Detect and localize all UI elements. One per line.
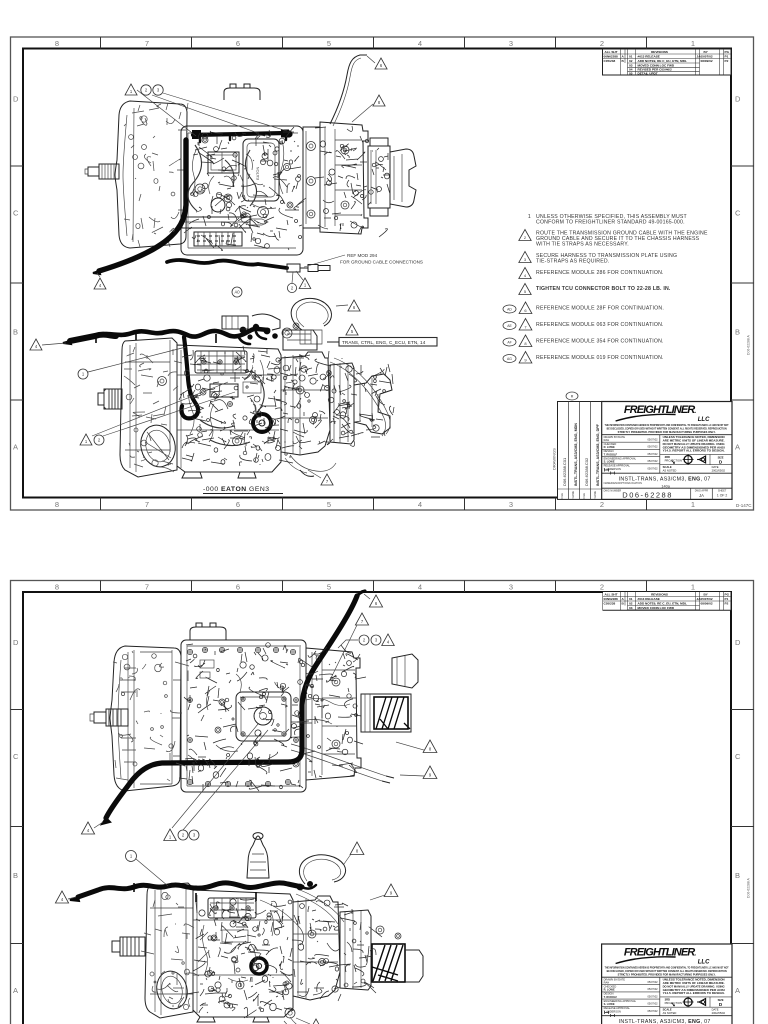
svg-text:D06-62288.C01: D06-62288.C01 — [562, 457, 567, 486]
svg-text:3: 3 — [509, 500, 513, 509]
svg-text:FILE: FILE — [582, 493, 586, 499]
svg-text:6: 6 — [236, 583, 240, 592]
svg-text:C: C — [735, 209, 741, 218]
svg-text:D-147C: D-147C — [736, 503, 752, 508]
svg-text:AE: AE — [507, 324, 512, 328]
svg-text:3: 3 — [509, 583, 513, 592]
svg-text:A: A — [735, 443, 740, 452]
svg-text:REFERENCE MODULE 063 FOR CONTI: REFERENCE MODULE 063 FOR CONTINUATION. — [536, 322, 664, 328]
svg-text:A: A — [735, 986, 740, 995]
svg-text:8: 8 — [55, 500, 59, 509]
svg-text:B: B — [735, 328, 740, 337]
svg-text:TIE-STRAPS AS REQUIRED.: TIE-STRAPS AS REQUIRED. — [536, 259, 610, 265]
svg-text:7: 7 — [145, 39, 149, 48]
svg-text:D06-62288 A: D06-62288 A — [747, 877, 751, 898]
svg-text:R: R — [571, 395, 574, 399]
svg-text:FOR GROUND CABLE CONNECTIONS: FOR GROUND CABLE CONNECTIONS — [340, 260, 423, 265]
svg-text:7: 7 — [145, 583, 149, 592]
svg-text:DRAWINGS: DRAWINGS — [552, 448, 557, 470]
svg-text:B: B — [13, 328, 18, 337]
svg-text:1: 1 — [691, 39, 695, 48]
svg-text:INSTL-TRANS, AS3/CM3, ENG, DPF: INSTL-TRANS, AS3/CM3, ENG, DPF — [596, 423, 600, 486]
svg-text:NAME: NAME — [571, 491, 575, 499]
svg-text:C: C — [13, 209, 19, 218]
svg-text:NAME: NAME — [593, 491, 597, 499]
svg-text:REFERENCE MODULE 019 FOR CONTI: REFERENCE MODULE 019 FOR CONTINUATION. — [536, 355, 664, 361]
svg-text:B: B — [735, 871, 740, 880]
svg-text:A: A — [13, 443, 18, 452]
svg-text:D06-62288.C02: D06-62288.C02 — [584, 457, 589, 486]
svg-text:CONFORM TO FREIGHTLINER STANDA: CONFORM TO FREIGHTLINER STANDARD 49-0016… — [536, 220, 685, 226]
svg-text:INSTL-TRANS, AS3/CM3, ENG, MDN: INSTL-TRANS, AS3/CM3, ENG, MDN — [574, 423, 578, 486]
svg-text:REF MOD 294: REF MOD 294 — [347, 253, 378, 258]
svg-text:-000 EATON GEN3: -000 EATON GEN3 — [203, 486, 270, 493]
svg-text:6: 6 — [236, 39, 240, 48]
svg-text:FILE: FILE — [560, 493, 564, 499]
svg-text:D: D — [735, 95, 741, 104]
svg-text:A: A — [13, 986, 18, 995]
svg-text:5: 5 — [327, 583, 331, 592]
svg-text:TIGHTEN TCU CONNECTOR BOLT TO: TIGHTEN TCU CONNECTOR BOLT TO 22-28 LB. … — [536, 286, 671, 292]
svg-text:8: 8 — [55, 583, 59, 592]
svg-text:REFERENCE MODULE 28F FOR CONTI: REFERENCE MODULE 28F FOR CONTINUATION. — [536, 306, 664, 312]
svg-text:AG: AG — [507, 357, 512, 361]
svg-text:7: 7 — [145, 500, 149, 509]
svg-text:REFERENCE MODULE 286 FOR CONTI: REFERENCE MODULE 286 FOR CONTINUATION. — [536, 270, 664, 276]
svg-text:EATON: EATON — [255, 166, 260, 180]
svg-text:AF: AF — [507, 340, 511, 344]
svg-text:2: 2 — [600, 583, 604, 592]
svg-text:D: D — [735, 638, 741, 647]
svg-text:2: 2 — [600, 500, 604, 509]
svg-text:D: D — [13, 95, 19, 104]
svg-text:REFERENCE MODULE 354 FOR CONTI: REFERENCE MODULE 354 FOR CONTINUATION. — [536, 339, 664, 345]
svg-text:5: 5 — [327, 500, 331, 509]
svg-text:A0: A0 — [234, 290, 240, 295]
svg-text:4: 4 — [418, 583, 422, 592]
svg-text:C: C — [735, 752, 741, 761]
svg-text:WITH TIE STRAPS AS NECESSARY.: WITH TIE STRAPS AS NECESSARY. — [536, 242, 629, 248]
svg-text:D: D — [13, 638, 19, 647]
svg-text:4: 4 — [418, 39, 422, 48]
svg-text:D06-62288 A: D06-62288 A — [747, 334, 751, 355]
svg-text:B: B — [13, 871, 18, 880]
svg-text:1: 1 — [691, 583, 695, 592]
svg-text:3: 3 — [509, 39, 513, 48]
svg-text:2: 2 — [600, 39, 604, 48]
svg-text:4: 4 — [418, 500, 422, 509]
svg-text:AD: AD — [507, 307, 512, 311]
svg-text:6: 6 — [236, 500, 240, 509]
svg-text:1: 1 — [528, 214, 531, 220]
svg-text:8: 8 — [55, 39, 59, 48]
svg-text:1: 1 — [691, 500, 695, 509]
svg-text:TRANS, CTRL, ENG, C_ECU, ETN,: TRANS, CTRL, ENG, C_ECU, ETN, 14 — [342, 340, 426, 345]
svg-text:C: C — [13, 752, 19, 761]
svg-text:5: 5 — [327, 39, 331, 48]
